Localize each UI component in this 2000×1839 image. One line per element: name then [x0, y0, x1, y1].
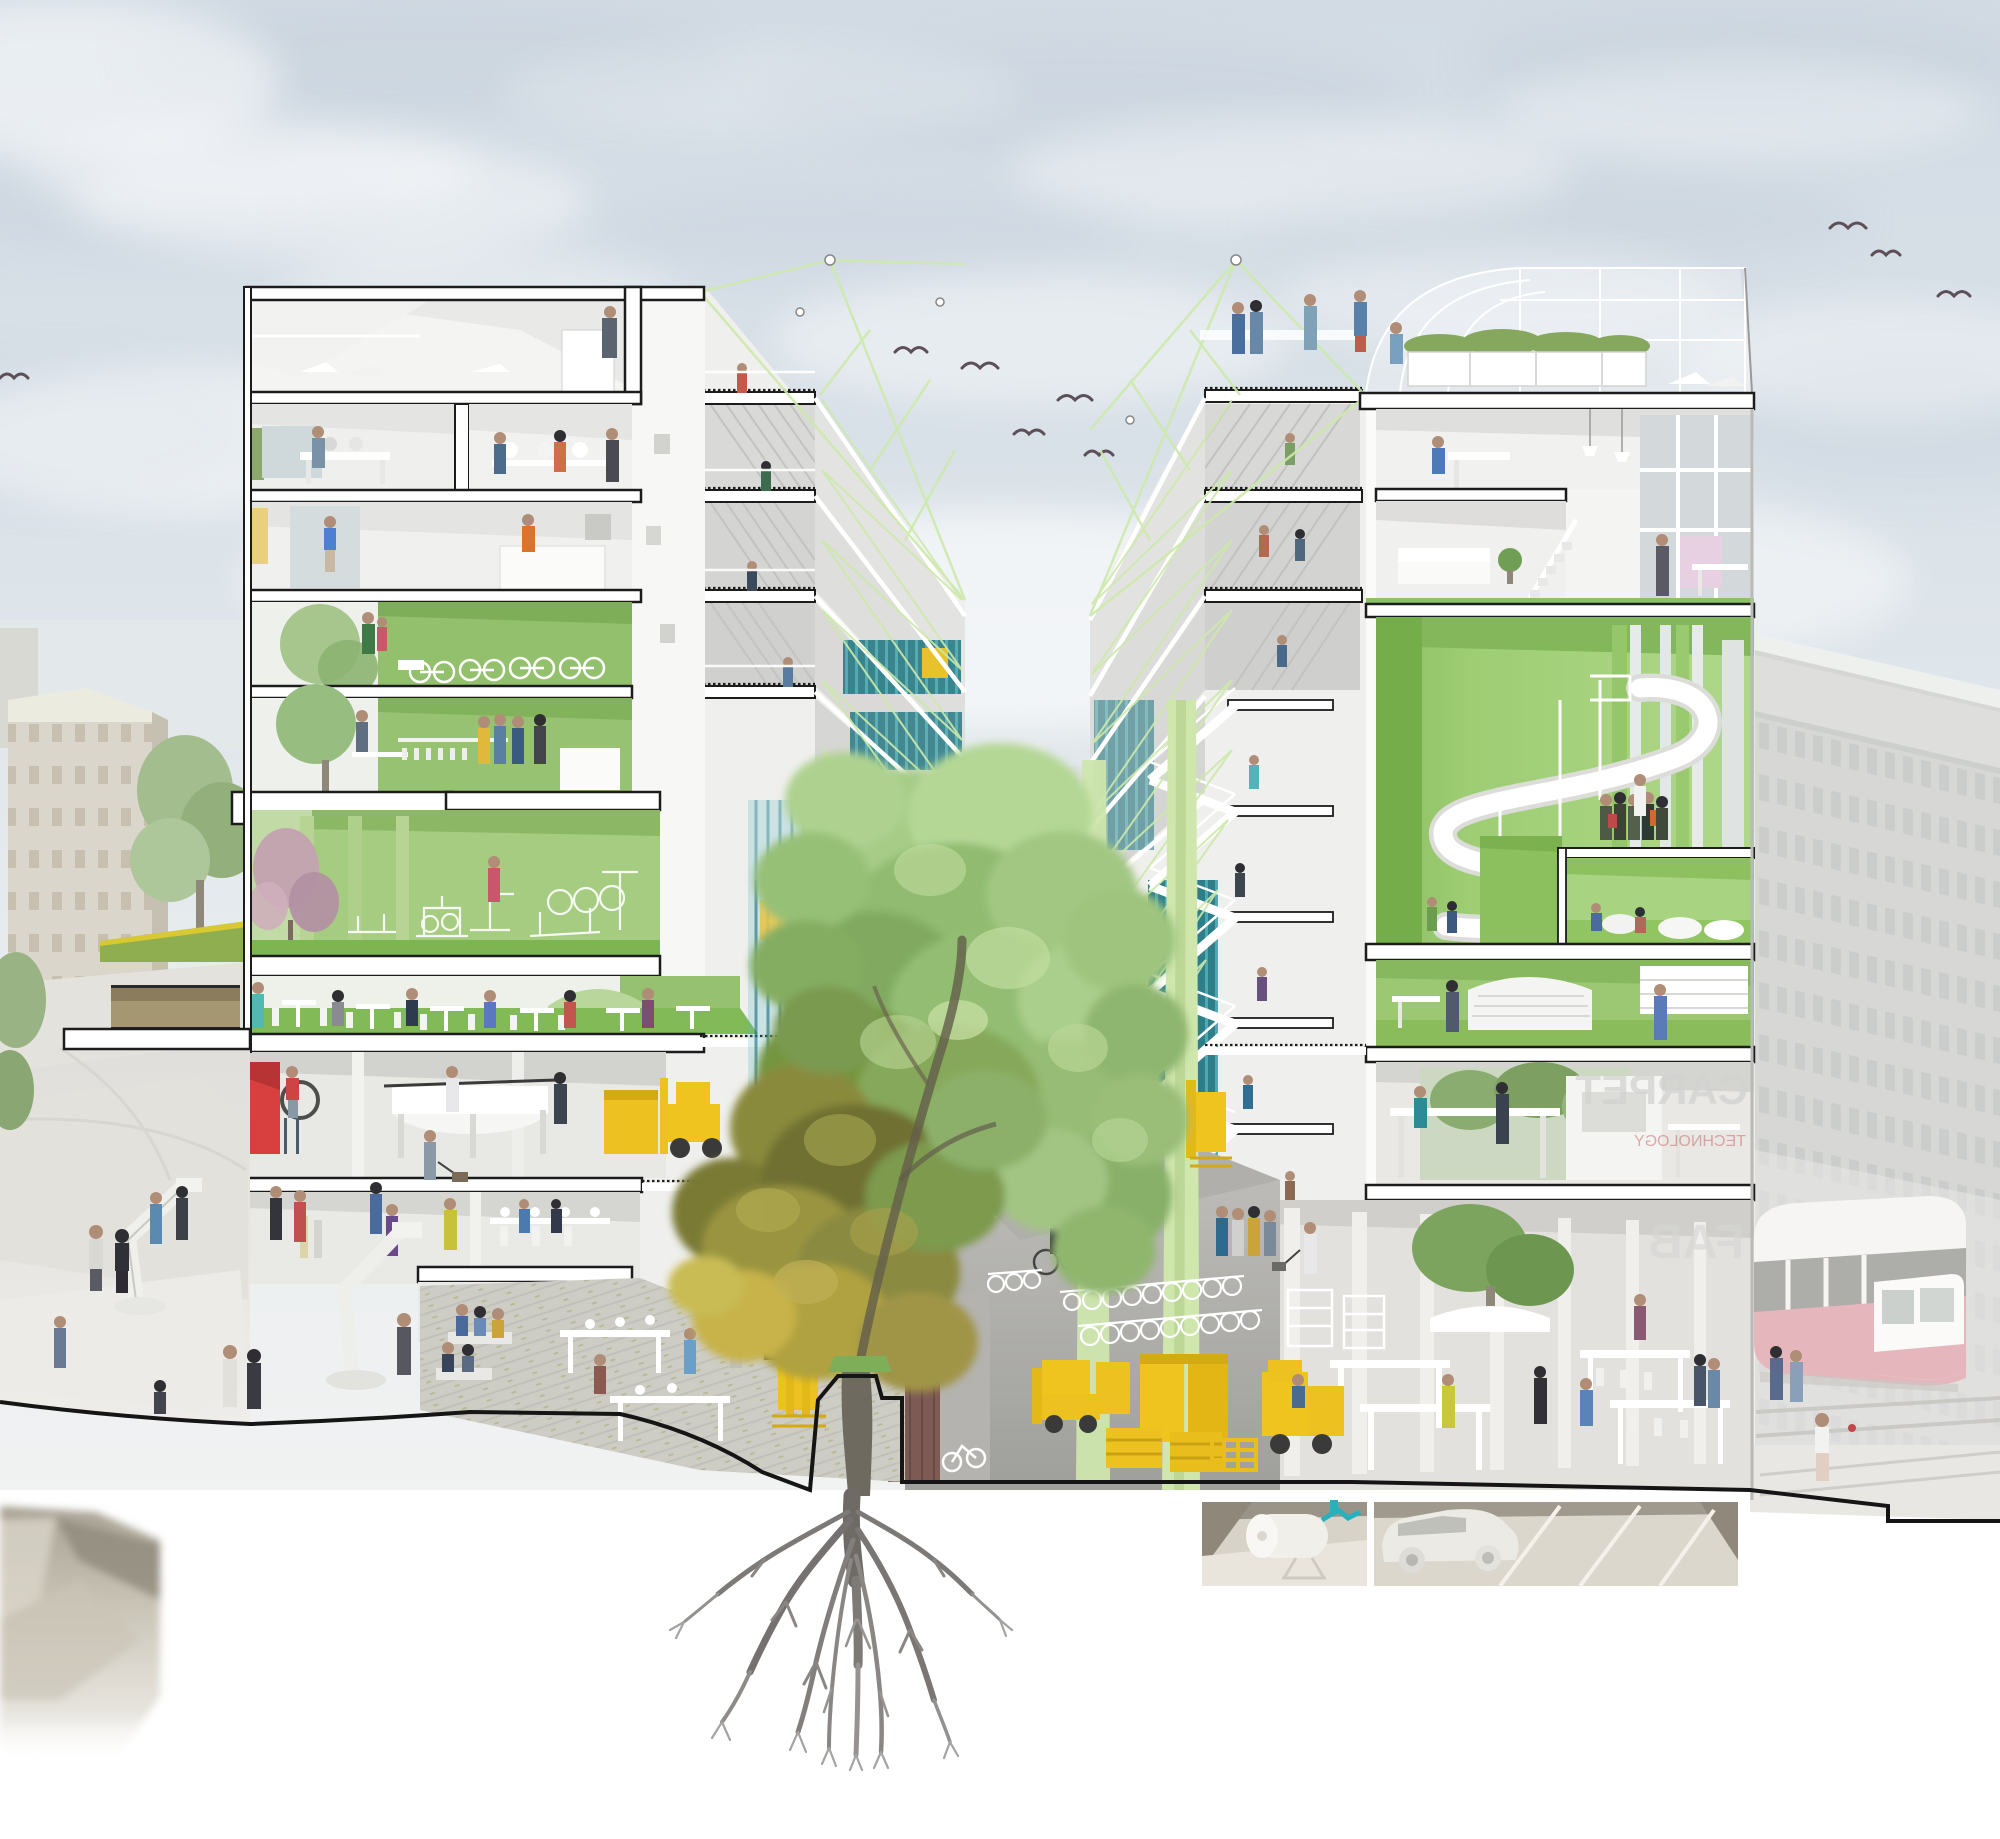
svg-text:TECHNOLOGY: TECHNOLOGY [1634, 1133, 1746, 1150]
svg-text:FAB: FAB [1648, 1216, 1744, 1269]
svg-text:CARPET: CARPET [1575, 1066, 1748, 1113]
